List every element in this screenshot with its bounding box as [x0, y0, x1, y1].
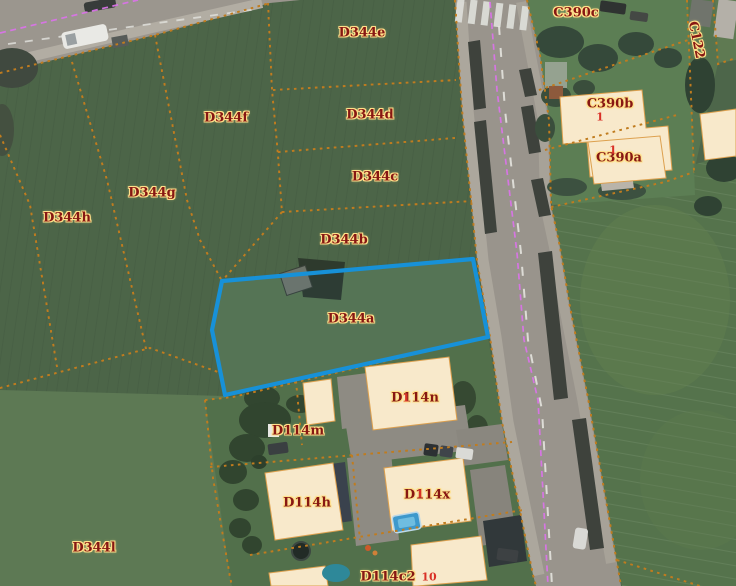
parcel-label-D344f: D344f	[204, 111, 248, 126]
map-canvas[interactable]: D344eD344dD344cD344fD344gD344hD344bD344a…	[0, 0, 736, 586]
parcel-label-D344d: D344d	[346, 108, 394, 123]
parcel-label-D344b: D344b	[320, 233, 368, 248]
parcel-label-D344l: D344l	[72, 541, 115, 556]
house-number-1: 1	[416, 488, 424, 501]
parcel-label-C390c: C390c	[553, 6, 598, 21]
house-number-1: 1	[596, 111, 604, 124]
label-layer: D344eD344dD344cD344fD344gD344hD344bD344a…	[0, 0, 736, 586]
parcel-label-D114m: D114m	[272, 424, 324, 439]
parcel-label-C390b: C390b	[587, 97, 634, 112]
parcel-label-D344c: D344c	[352, 170, 398, 185]
parcel-label-D114h: D114h	[283, 496, 331, 511]
house-number-10: 10	[421, 571, 436, 584]
parcel-label-D114x: D114x	[404, 488, 450, 503]
house-number-1: 1	[609, 144, 617, 157]
parcel-label-D114n: D114n	[391, 391, 439, 406]
parcel-label-C390a: C390a	[596, 151, 642, 166]
house-number-1: 1	[402, 392, 410, 405]
parcel-label-D344h: D344h	[43, 211, 91, 226]
parcel-label-D114c2: D114c2	[360, 570, 415, 585]
parcel-label-D344g: D344g	[128, 186, 176, 201]
parcel-label-D344e: D344e	[339, 26, 386, 41]
parcel-label-D344a: D344a	[328, 312, 375, 327]
parcel-label-C122: C122	[685, 20, 707, 60]
